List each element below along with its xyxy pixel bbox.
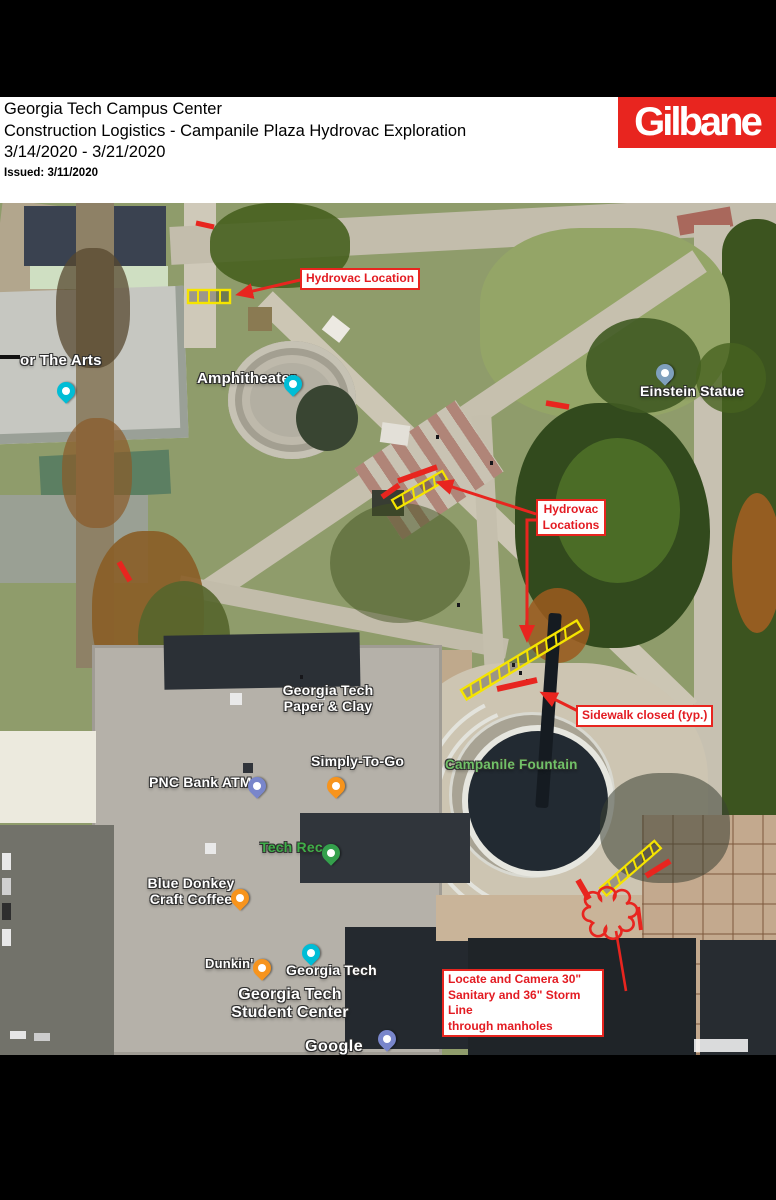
poi-label-pnc-bank-atm: PNC Bank ATM — [149, 775, 252, 791]
tent — [380, 422, 411, 446]
kiosk — [248, 307, 272, 331]
callout-sidewalk-closed: Sidewalk closed (typ.) — [576, 705, 713, 727]
parked-car — [34, 1033, 50, 1041]
poi-label-campanile-fountain: Campanile Fountain — [445, 757, 578, 772]
pedestrian-dot — [490, 461, 493, 465]
gilbane-logo-text: Gilbane — [634, 100, 760, 145]
bottom-black-bar — [0, 1055, 776, 1200]
pedestrian-dot — [436, 435, 439, 439]
google-watermark: Google — [305, 1038, 363, 1055]
pedestrian-dot — [526, 679, 529, 683]
construction-logistics-sheet: { "header": { "line1": "Georgia Tech Cam… — [0, 0, 776, 1200]
pedestrian-dot — [519, 671, 522, 675]
parked-car — [10, 1031, 26, 1039]
poi-label-georgia-tech: Georgia Tech — [286, 963, 377, 979]
poi-label-student-center: Georgia Tech Student Center — [202, 986, 378, 1022]
amphitheater-stage — [296, 385, 358, 451]
map-edge-mark — [0, 355, 20, 359]
gilbane-logo: Gilbane — [618, 97, 776, 148]
parking-lot — [0, 825, 114, 1055]
poi-label-paper-clay: Georgia Tech Paper & Clay — [266, 683, 390, 714]
rooftop-unit — [205, 843, 216, 854]
pedestrian-dot — [457, 603, 460, 607]
rooftop-unit — [243, 763, 253, 773]
poi-label-dunkin: Dunkin' — [205, 957, 254, 972]
callout-hydrovac-location: Hydrovac Location — [300, 268, 420, 290]
project-title: Georgia Tech Campus Center — [4, 99, 466, 121]
building-roof — [700, 940, 776, 1055]
parked-car — [2, 903, 11, 920]
callout-locate-camera: Locate and Camera 30" Sanitary and 36" S… — [442, 969, 604, 1037]
poi-label-einstein-statue: Einstein Statue — [640, 384, 744, 400]
pedestrian-dot — [512, 663, 515, 667]
parked-car — [2, 853, 11, 870]
top-black-bar — [0, 0, 776, 97]
poi-label-simply-to-go: Simply-To-Go — [311, 754, 404, 770]
tent — [322, 315, 350, 343]
tree-canopy — [732, 493, 776, 633]
parked-car — [2, 929, 11, 946]
poi-label-amphitheater: Amphitheater — [197, 371, 296, 388]
parked-car — [2, 878, 11, 895]
satellite-map: or The Arts Amphitheater Einstein Statue… — [0, 203, 776, 1055]
map-attribution-box — [694, 1039, 748, 1052]
issued-date: Issued: 3/11/2020 — [4, 167, 466, 179]
tree-shadow — [330, 503, 470, 623]
pedestrian-dot — [300, 675, 303, 679]
callout-hydrovac-locations: Hydrovac Locations — [536, 499, 606, 536]
sheet-header: Georgia Tech Campus Center Construction … — [4, 99, 466, 179]
tree-shadow — [600, 773, 730, 883]
rooftop-unit — [230, 693, 242, 705]
tree-canopy — [696, 343, 766, 413]
building-roof — [0, 731, 96, 823]
poi-label-arts: or The Arts — [20, 353, 102, 370]
date-range: 3/14/2020 - 3/21/2020 — [4, 142, 466, 164]
sheet-title: Construction Logistics - Campanile Plaza… — [4, 121, 466, 143]
tree-canopy — [56, 248, 130, 368]
tree-canopy — [62, 418, 132, 528]
poi-label-tech-rec: Tech Rec — [260, 840, 323, 856]
